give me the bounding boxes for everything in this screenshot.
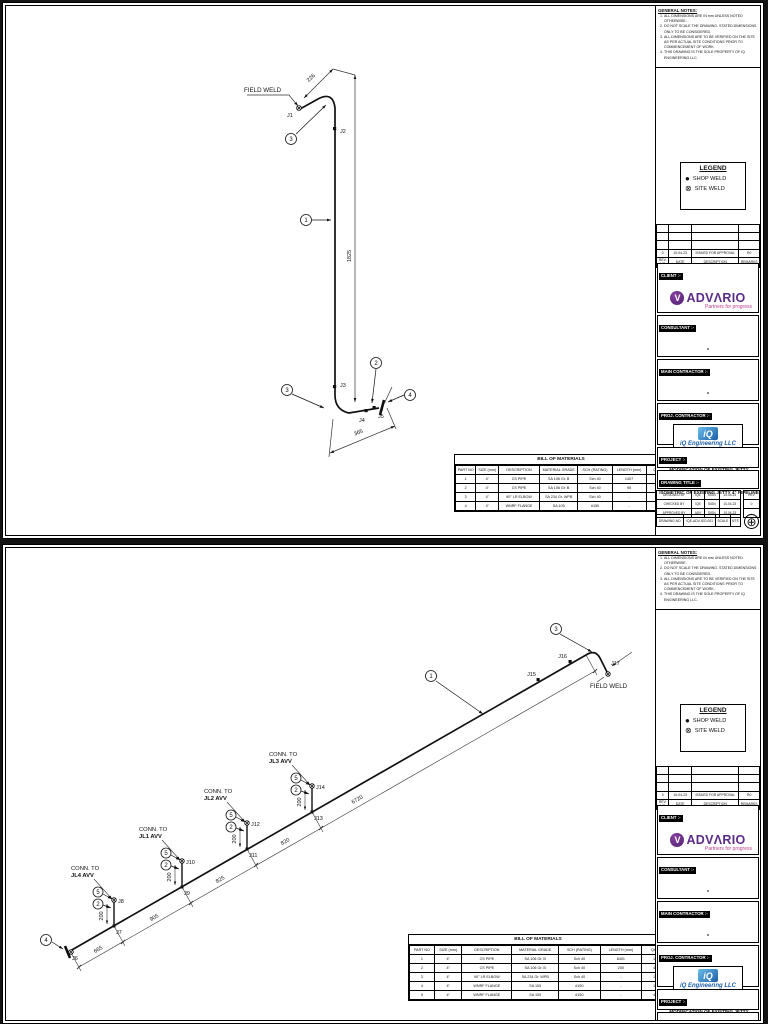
sheet1-inner-border: 226 1825 365 FIELD WELD J1 J2 J3 J4 J5 <box>5 5 761 536</box>
table-row: REV <box>744 491 760 500</box>
joint-j8: J8 <box>118 899 124 905</box>
note-item: ALL DIMENSIONS ARE IN mm UNLESS NOTED OT… <box>664 556 758 566</box>
revision-rows: 010-04-23ISSUED FOR APPROVALR0REV. NODAT… <box>657 225 760 268</box>
conn-jl4: JL4 AVV <box>71 873 94 879</box>
main-contractor-label: MAIN CONTRACTOR :- <box>659 911 710 918</box>
table-cell: PART NO <box>410 946 435 955</box>
table-cell: SA 105 <box>512 982 559 991</box>
site-weld-icon <box>297 106 302 111</box>
joint-j6: J6 <box>72 956 78 962</box>
table-cell: SIZE (mm) <box>434 946 462 955</box>
table-cell: SCALE <box>716 515 731 527</box>
table-cell: DESCRIPTION <box>499 466 540 475</box>
iq-logo-icon: iQ <box>698 427 718 440</box>
table-cell <box>739 767 760 775</box>
table-row: 14"CS PIPESA 106 Gr. BSch 4084011 <box>410 955 667 964</box>
note-item: ALL DIMENSIONS ARE TO BE VERIFIED ON THE… <box>664 35 758 51</box>
shop-weld-icon <box>569 660 572 663</box>
client-section: CLIENT :- V ADVΛRIO Partners for progres… <box>657 263 759 313</box>
table-cell <box>692 225 739 233</box>
table-cell: 1 <box>410 955 435 964</box>
table-cell: SCH (RATING) <box>559 946 600 955</box>
table-cell: 4" <box>434 964 462 973</box>
advario-brand: ADVΛRIO <box>686 833 745 847</box>
table-cell: 4" <box>434 973 462 982</box>
table-cell: LENGTH (mm) <box>612 466 646 475</box>
shop-weld-icon <box>246 848 249 851</box>
table-row: 34"90° LR ELBOWSA 234 Gr. WPBSch 40-2 <box>456 493 667 502</box>
table-cell: - <box>600 973 641 982</box>
consultant-section: CONSULTANT :- - <box>657 857 759 899</box>
consultant-label: CONSULTANT :- <box>659 867 696 874</box>
table-row: 34"90° LR ELBOWSA 234 Gr. WPBSch 40-1 <box>410 973 667 982</box>
table-cell: 4" <box>434 982 462 991</box>
shop-weld-icon: ● <box>685 717 690 725</box>
table-cell: WNRF FLANGE <box>462 991 512 1000</box>
conn-jl2: JL2 AVV <box>204 796 227 802</box>
proj-contractor-label: PROJ. CONTRACTOR :- <box>659 413 712 420</box>
table-cell: CS PIPE <box>499 484 540 493</box>
legend-site-weld-label: SITE WELD <box>695 728 725 734</box>
table-cell: - <box>612 502 646 511</box>
table-cell <box>657 225 669 233</box>
north-arrow-icon: ⊕ <box>744 514 759 529</box>
shop-weld-icon <box>365 409 368 412</box>
table-cell: CS PIPE <box>462 955 512 964</box>
project-section: PROJECT :- MODIFICATION OF EXISTING JETT… <box>657 447 759 468</box>
table-cell: #150 <box>578 502 612 511</box>
note-item: THIS DRAWING IS THE SOLE PROPERTY OF IQ … <box>664 592 758 602</box>
table-row: 44"WNRF FLANGESA 105#150-1 <box>410 982 667 991</box>
table-cell: Sch 40 <box>578 493 612 502</box>
table-row <box>657 767 760 775</box>
joint-j7: J7 <box>116 930 122 936</box>
legend-box: LEGEND ●SHOP WELD ⊗SITE WELD <box>680 162 746 210</box>
joint-j16: J16 <box>558 654 567 660</box>
dim-226: 226 <box>306 73 317 84</box>
project-label: PROJECT :- <box>659 999 687 1006</box>
table-cell: Sch 40 <box>578 475 612 484</box>
connection-callouts: CONN. TO JL4 AVV CONN. TO JL1 AVV CONN. … <box>71 752 310 899</box>
table-row: 44"WNRF FLANGESA 105#150-1 <box>456 502 667 511</box>
table-cell: 10-04-23 <box>719 500 740 509</box>
advario-brand: ADVΛRIO <box>686 291 745 305</box>
dim-365: 365 <box>353 429 364 438</box>
table-cell: 1 <box>456 475 476 484</box>
dim-820: 820 <box>280 837 291 847</box>
table-cell: Sch 40 <box>559 964 600 973</box>
client-label: CLIENT :- <box>659 815 683 822</box>
table-cell <box>739 783 760 791</box>
table-cell <box>739 233 760 241</box>
advario-logo: V ADVΛRIO Partners for progress <box>658 291 758 310</box>
drawing-number-row: DRAWING NO.IQE-ADV-ISO-001SCALENTS <box>656 514 741 527</box>
joint-j3: J3 <box>340 383 346 389</box>
joint-j12: J12 <box>251 822 260 828</box>
table-row <box>657 225 760 233</box>
main-contractor-section: MAIN CONTRACTOR :- - <box>657 359 759 401</box>
shop-weld-icon <box>311 811 314 814</box>
footer-row: DRAWING NO.IQE-ADV-ISO-001SCALENTS <box>657 515 741 527</box>
table-cell <box>657 775 669 783</box>
main-contractor-section: MAIN CONTRACTOR :- - <box>657 901 759 943</box>
table-cell: #150 <box>559 991 600 1000</box>
bom-title: BILL OF MATERIALS <box>409 935 667 945</box>
table-cell: SA 105 <box>539 502 578 511</box>
table-cell: 3 <box>456 493 476 502</box>
advario-logo-icon: V <box>670 833 684 847</box>
table-row: 24"CS PIPESA 106 Gr. BSch 40951 <box>456 484 667 493</box>
table-cell: 4" <box>476 484 499 493</box>
conn-label: CONN. TO <box>71 866 100 872</box>
table-cell <box>692 233 739 241</box>
client-label: CLIENT :- <box>659 273 683 280</box>
table-cell: SCH (RATING) <box>578 466 612 475</box>
table-cell: - <box>612 493 646 502</box>
table-cell: 0 <box>657 249 669 257</box>
table-cell: 4" <box>434 991 462 1000</box>
table-cell: - <box>600 982 641 991</box>
dim-200: 200 <box>167 872 173 881</box>
table-cell: 0 <box>744 500 760 509</box>
drawing-title-section: DRAWING TITLE :- ISOMETRIC OF EXISTING J… <box>657 1012 759 1021</box>
table-cell <box>739 775 760 783</box>
dim-200: 200 <box>99 911 105 920</box>
shop-weld-icon <box>333 127 336 130</box>
table-cell: 4" <box>476 475 499 484</box>
table-cell: 2 <box>456 484 476 493</box>
general-notes: GENERAL NOTES: ALL DIMENSIONS ARE IN mm … <box>656 548 760 610</box>
table-row: DRAWING NO.IQE-ADV-ISO-001SCALENTS <box>657 515 741 527</box>
table-cell: SA 106 Gr. B <box>539 475 578 484</box>
client-section: CLIENT :- V ADVΛRIO Partners for progres… <box>657 805 759 855</box>
drawing-sheet-1: 226 1825 365 FIELD WELD J1 J2 J3 J4 J5 <box>2 2 764 539</box>
shop-weld-icon <box>113 925 116 928</box>
table-cell <box>692 783 739 791</box>
joint-j9: J9 <box>184 891 190 897</box>
table-cell: CS PIPE <box>462 964 512 973</box>
joint-j2: J2 <box>340 129 346 135</box>
table-cell: 4" <box>476 493 499 502</box>
consultant-label: CONSULTANT :- <box>659 325 696 332</box>
conn-label: CONN. TO <box>139 827 168 833</box>
table-row: 010-04-23ISSUED FOR APPROVALR0 <box>657 249 760 257</box>
table-cell: 10-04-23 <box>719 491 740 500</box>
shop-weld-icon <box>333 385 336 388</box>
consultant-value: - <box>707 886 710 895</box>
legend-title: LEGEND <box>685 707 741 714</box>
proj-contractor-label: PROJ. CONTRACTOR :- <box>659 955 712 962</box>
table-cell: IQE <box>692 491 705 500</box>
table-cell: SIGN <box>704 500 719 509</box>
legend-box: LEGEND ●SHOP WELD ⊗SITE WELD <box>680 704 746 752</box>
page: { "notes": { "title": "GENERAL NOTES:", … <box>0 0 768 1024</box>
table-cell <box>657 233 669 241</box>
table-row: 010-04-23ISSUED FOR APPROVALR0 <box>657 791 760 799</box>
main-contractor-label: MAIN CONTRACTOR :- <box>659 369 710 376</box>
pipe-run <box>65 653 607 958</box>
bom-rows: PART NOSIZE (mm)DESCRIPTIONMATERIAL GRAD… <box>456 466 667 511</box>
table-cell: 200 <box>600 964 641 973</box>
general-notes: GENERAL NOTES: ALL DIMENSIONS ARE IN mm … <box>656 6 760 68</box>
table-cell: 1407 <box>612 475 646 484</box>
drawing-title-section: DRAWING TITLE :- ISOMETRIC OF EXISTING J… <box>657 470 759 489</box>
title-block-panel: GENERAL NOTES: ALL DIMENSIONS ARE IN mm … <box>655 548 760 1020</box>
shop-weld-icon <box>181 886 184 889</box>
table-cell <box>669 775 692 783</box>
table-row: PART NOSIZE (mm)DESCRIPTIONMATERIAL GRAD… <box>410 946 667 955</box>
project-section: PROJECT :- MODIFICATION OF EXISTING JETT… <box>657 989 759 1010</box>
field-weld-label: FIELD WELD <box>244 87 282 94</box>
table-cell: SA 105 <box>512 991 559 1000</box>
drawing-title-label: DRAWING TITLE :- <box>659 480 701 487</box>
bom-title: BILL OF MATERIALS <box>455 455 667 465</box>
site-weld-icon: ⊗ <box>685 185 692 193</box>
advario-logo-icon: V <box>670 291 684 305</box>
table-row: PART NOSIZE (mm)DESCRIPTIONMATERIAL GRAD… <box>456 466 667 475</box>
table-cell: SA 106 Gr. B <box>512 964 559 973</box>
table-cell: DESIGNED BY <box>657 491 692 500</box>
note-item: ALL DIMENSIONS ARE TO BE VERIFIED ON THE… <box>664 577 758 593</box>
table-cell: PART NO <box>456 466 476 475</box>
table-row <box>657 241 760 249</box>
table-cell: 0 <box>657 791 669 799</box>
table-row <box>657 783 760 791</box>
table-cell: REV <box>744 491 760 500</box>
table-row <box>657 233 760 241</box>
bill-of-materials-table: BILL OF MATERIALS PART NOSIZE (mm)DESCRI… <box>454 454 668 512</box>
dim-200: 200 <box>297 797 303 806</box>
table-cell: ISSUED FOR APPROVAL <box>692 791 739 799</box>
table-cell: 90° LR ELBOW <box>499 493 540 502</box>
table-cell: 8401 <box>600 955 641 964</box>
pipe-run <box>300 96 384 415</box>
table-cell: 10-04-23 <box>669 249 692 257</box>
table-cell: IQE <box>692 500 705 509</box>
table-row: 14"CS PIPESA 106 Gr. BSch 4014071 <box>456 475 667 484</box>
site-weld-icons <box>69 672 611 955</box>
advario-logo: V ADVΛRIO Partners for progress <box>658 833 758 852</box>
joint-j4: J4 <box>359 418 365 424</box>
table-row: 0 <box>744 500 760 509</box>
site-weld-icon: ⊗ <box>685 727 692 735</box>
shop-weld-icon: ● <box>685 175 690 183</box>
joint-j17: J17 <box>611 661 620 667</box>
shop-weld-icon <box>537 678 540 681</box>
table-cell <box>692 241 739 249</box>
table-cell: 3 <box>410 973 435 982</box>
table-cell <box>669 783 692 791</box>
dim-200: 200 <box>232 834 238 843</box>
revision-table: 010-04-23ISSUED FOR APPROVALR0REV. NODAT… <box>656 766 760 810</box>
table-cell <box>692 775 739 783</box>
drawing-sheet-2: 665 905 825 820 6720 200 200 200 200 <box>2 544 764 1024</box>
note-item: ALL DIMENSIONS ARE IN mm UNLESS NOTED OT… <box>664 14 758 24</box>
conn-label: CONN. TO <box>269 752 298 758</box>
table-row <box>657 775 760 783</box>
joint-j15: J15 <box>527 672 536 678</box>
table-cell: 4" <box>476 502 499 511</box>
main-contractor-value: - <box>707 930 710 939</box>
dimension-lines <box>247 69 396 457</box>
advario-tagline: Partners for progress <box>705 846 752 852</box>
legend-site-weld-label: SITE WELD <box>695 186 725 192</box>
table-cell <box>657 241 669 249</box>
table-cell: SIZE (mm) <box>476 466 499 475</box>
table-cell: SA 106 Gr. B <box>512 955 559 964</box>
table-cell <box>739 241 760 249</box>
table-cell: 4 <box>456 502 476 511</box>
note-item: THIS DRAWING IS THE SOLE PROPERTY OF IQ … <box>664 50 758 60</box>
table-cell: SA 234 Gr. WPB <box>512 973 559 982</box>
legend-title: LEGEND <box>685 165 741 172</box>
table-cell: 4 <box>410 982 435 991</box>
table-cell: IQE-ADV-ISO-001 <box>684 515 716 527</box>
joint-j13: J13 <box>314 816 323 822</box>
main-contractor-value: - <box>707 388 710 397</box>
revision-rows: 010-04-23ISSUED FOR APPROVALR0REV. NODAT… <box>657 767 760 810</box>
weld-symbols <box>69 660 611 954</box>
table-cell <box>692 767 739 775</box>
joint-j11: J11 <box>249 853 257 859</box>
table-cell: MATERIAL GRADE <box>539 466 578 475</box>
table-cell: SA 106 Gr. B <box>539 484 578 493</box>
bill-of-materials-table: BILL OF MATERIALS PART NOSIZE (mm)DESCRI… <box>408 934 668 1001</box>
dim-6720: 6720 <box>351 794 365 805</box>
conn-jl1: JL1 AVV <box>139 834 162 840</box>
table-cell: WNRF FLANGE <box>499 502 540 511</box>
table-cell: LENGTH (mm) <box>600 946 641 955</box>
table-cell <box>657 783 669 791</box>
proj-contractor-section: PROJ. CONTRACTOR :- iQ iQ Engineering LL… <box>657 945 759 987</box>
table-cell <box>669 233 692 241</box>
table-cell: DRAWING NO. <box>657 515 684 527</box>
consultant-value: - <box>707 344 710 353</box>
table-cell: R0 <box>739 249 760 257</box>
table-cell: SIGN <box>704 491 719 500</box>
table-cell: 95 <box>612 484 646 493</box>
joint-j10: J10 <box>186 860 195 866</box>
table-cell: 10-04-23 <box>669 791 692 799</box>
shop-weld-icon <box>373 406 376 409</box>
table-cell: R0 <box>739 791 760 799</box>
table-cell: CHECKED BY <box>657 500 692 509</box>
proj-contractor-section: PROJ. CONTRACTOR :- iQ iQ Engineering LL… <box>657 403 759 445</box>
bom-rows: PART NOSIZE (mm)DESCRIPTIONMATERIAL GRAD… <box>410 946 667 1000</box>
table-cell: WNRF FLANGE <box>462 982 512 991</box>
table-cell <box>669 241 692 249</box>
revision-table: 010-04-23ISSUED FOR APPROVALR0REV. NODAT… <box>656 224 760 268</box>
table-row: DESIGNED BYIQESIGN10-04-23 <box>657 491 741 500</box>
weld-symbols <box>297 106 376 413</box>
table-cell <box>657 767 669 775</box>
table-cell: DESCRIPTION <box>462 946 512 955</box>
dimension-lines <box>70 652 632 971</box>
title-block-panel: GENERAL NOTES: ALL DIMENSIONS ARE IN mm … <box>655 6 760 535</box>
consultant-section: CONSULTANT :- - <box>657 315 759 357</box>
table-cell: Sch 40 <box>559 973 600 982</box>
table-cell: CS PIPE <box>499 475 540 484</box>
table-cell: ISSUED FOR APPROVAL <box>692 249 739 257</box>
table-cell: #150 <box>559 982 600 991</box>
conn-jl3: JL3 AVV <box>269 759 292 765</box>
joint-j1: J1 <box>287 113 293 119</box>
table-row: 54"WNRF FLANGESA 105#150-4 <box>410 991 667 1000</box>
joint-j14: J14 <box>316 785 325 791</box>
table-cell: SA 234 Gr. WPB <box>539 493 578 502</box>
conn-label: CONN. TO <box>204 789 233 795</box>
project-label: PROJECT :- <box>659 457 687 464</box>
table-cell: 90° LR ELBOW <box>462 973 512 982</box>
legend-shop-weld-label: SHOP WELD <box>693 718 726 724</box>
table-cell: - <box>600 991 641 1000</box>
note-item: DO NOT SCALE THE DRAWING. STATED DIMENSI… <box>664 24 758 34</box>
joint-j5: J5 <box>378 414 384 420</box>
table-cell: MATERIAL GRADE <box>512 946 559 955</box>
table-cell: 2 <box>410 964 435 973</box>
legend-shop-weld-label: SHOP WELD <box>693 176 726 182</box>
general-notes-title: GENERAL NOTES: <box>658 550 758 555</box>
general-notes-title: GENERAL NOTES: <box>658 8 758 13</box>
sheet2-inner-border: 665 905 825 820 6720 200 200 200 200 <box>5 547 761 1021</box>
table-cell: Sch 40 <box>578 484 612 493</box>
table-cell: 4" <box>434 955 462 964</box>
table-cell: NTS <box>730 515 740 527</box>
table-cell <box>669 767 692 775</box>
table-row: CHECKED BYIQESIGN10-04-23 <box>657 500 741 509</box>
dim-1825: 1825 <box>347 250 353 262</box>
table-row: 24"CS PIPESA 106 Gr. BSch 402004 <box>410 964 667 973</box>
table-cell: 5 <box>410 991 435 1000</box>
field-weld-label: FIELD WELD <box>590 683 628 690</box>
table-cell: Sch 40 <box>559 955 600 964</box>
table-cell <box>739 225 760 233</box>
note-item: DO NOT SCALE THE DRAWING. STATED DIMENSI… <box>664 566 758 576</box>
advario-tagline: Partners for progress <box>705 304 752 310</box>
iq-logo-icon: iQ <box>698 969 718 982</box>
table-cell <box>669 225 692 233</box>
